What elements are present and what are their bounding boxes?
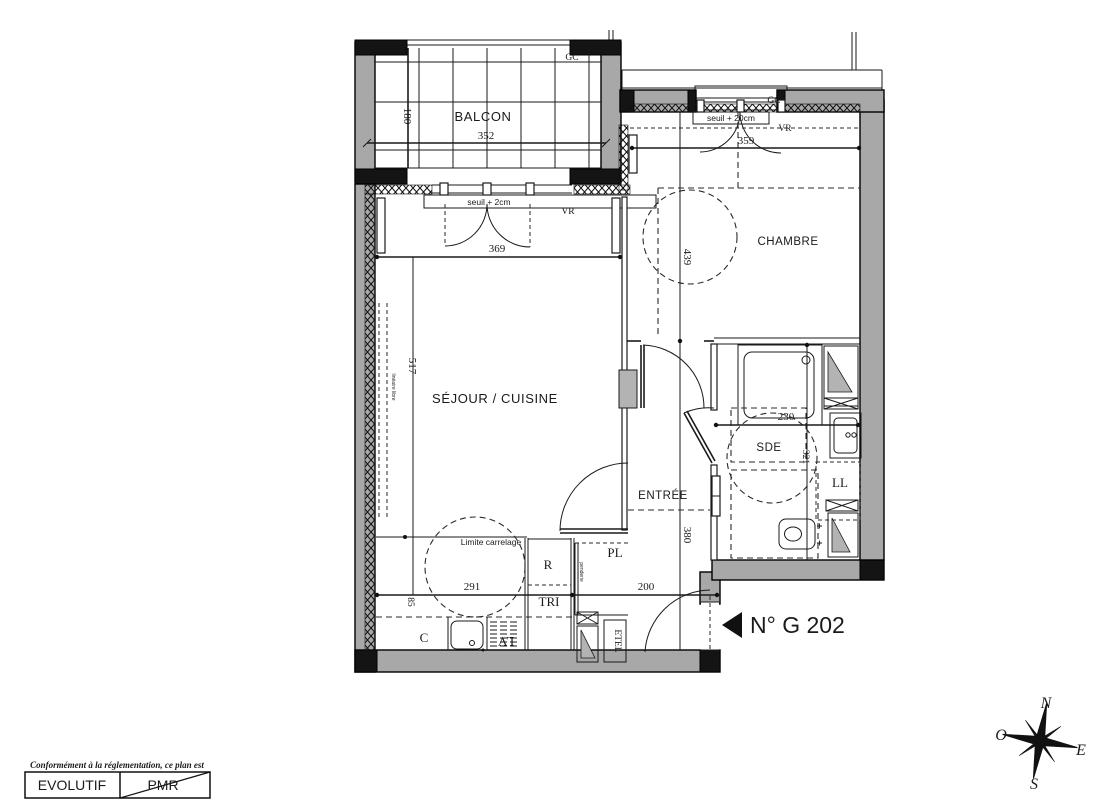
legend-notice: Conformément à la réglementation, ce pla… xyxy=(30,760,204,770)
sde-west-wall-upper xyxy=(711,344,717,410)
compass-north: N xyxy=(1040,695,1053,712)
compass-east: E xyxy=(1075,742,1086,759)
refrigerateur-label: R xyxy=(544,557,553,572)
dim-sejour-height: 517 xyxy=(406,358,418,375)
unit-number: N° G 202 xyxy=(750,612,845,638)
entry-arrow-icon xyxy=(722,612,742,638)
dim-balcon-width: 352 xyxy=(478,130,495,142)
dim-chambre-height: 439 xyxy=(681,249,693,266)
sejour-cuisine: SÉJOUR / CUISINE 369 517 linéaire libre … xyxy=(375,243,622,617)
gaine-technique xyxy=(581,630,595,658)
dim-entree-height: 380 xyxy=(681,527,693,544)
room-label-sejour: SÉJOUR / CUISINE xyxy=(432,391,558,406)
unit-marker: N° G 202 xyxy=(722,612,845,638)
sde-door xyxy=(684,408,715,463)
sde-south-wall xyxy=(712,560,884,580)
cuisine-door xyxy=(560,463,628,533)
dim-sde-height: 321 xyxy=(800,450,810,465)
gc-balcony-label: GC xyxy=(565,53,578,63)
sde: SDE LL xyxy=(714,343,861,560)
balcony-left-wall xyxy=(355,42,375,182)
limite-carrelage-label: Limite carrelage xyxy=(461,537,522,547)
turning-circle-cuisine xyxy=(425,517,525,617)
room-label-balcon: BALCON xyxy=(454,109,511,124)
balcony: BALCON 352 180 GC xyxy=(363,48,610,168)
floor-plan-drawing: BALCON 352 180 GC seuil + 2cm VR seuil +… xyxy=(0,0,1118,800)
compass-rose: N S E O xyxy=(995,695,1086,793)
vr-chambre-label: VR xyxy=(778,124,792,134)
seuil-sejour-label: seuil + 2cm xyxy=(467,197,510,207)
lave-vaisselle-label: LV xyxy=(497,634,514,649)
compass-south: S xyxy=(1030,776,1038,793)
seuil-chambre-label: seuil + 20cm xyxy=(707,113,755,123)
turning-circle-chambre xyxy=(643,190,737,284)
sejour-partition xyxy=(622,197,627,530)
legend-evolutif: EVOLUTIF xyxy=(38,777,106,793)
chambre-door xyxy=(641,345,704,408)
washbasin xyxy=(830,413,861,458)
dim-sde-width: 230 xyxy=(778,411,795,423)
vr-sejour-label: VR xyxy=(561,207,575,217)
dim-chambre-width: 359 xyxy=(738,135,755,147)
dim-sejour-width: 369 xyxy=(489,243,506,255)
lave-linge-label: LL xyxy=(832,475,848,490)
etel-label: ETEL xyxy=(612,629,622,652)
partitions xyxy=(377,135,860,560)
lineaire-libre-label: linéaire libre xyxy=(390,374,396,401)
tri-label: TRI xyxy=(539,594,560,609)
upper-structure-lines xyxy=(407,30,882,98)
legend-pmr: PMR xyxy=(147,777,178,793)
floor-plan-page: { "plan": { "unit_number": "N° G 202", "… xyxy=(0,0,1118,800)
balcony-right-wall xyxy=(601,42,621,182)
room-label-entree: ENTRÉE xyxy=(638,489,688,502)
wc xyxy=(779,519,822,549)
compass-west: O xyxy=(995,727,1007,744)
legend: Conformément à la réglementation, ce pla… xyxy=(25,760,210,798)
room-label-chambre: CHAMBRE xyxy=(757,236,818,248)
penderie-label: penderie xyxy=(578,562,584,582)
dim-cuisine-width: 291 xyxy=(464,581,481,593)
cuisson-label: C xyxy=(420,630,429,645)
radiator xyxy=(619,370,637,408)
dim-entree-width: 200 xyxy=(638,581,655,593)
gc-chambre-label: GC xyxy=(767,96,780,106)
placard-label: PL xyxy=(607,545,622,560)
east-wall xyxy=(860,100,884,560)
dim-balcon-depth: 180 xyxy=(401,108,413,125)
dim-cuisine-depth: 85 xyxy=(405,597,415,607)
room-label-sde: SDE xyxy=(756,442,781,454)
south-wall xyxy=(355,650,720,672)
